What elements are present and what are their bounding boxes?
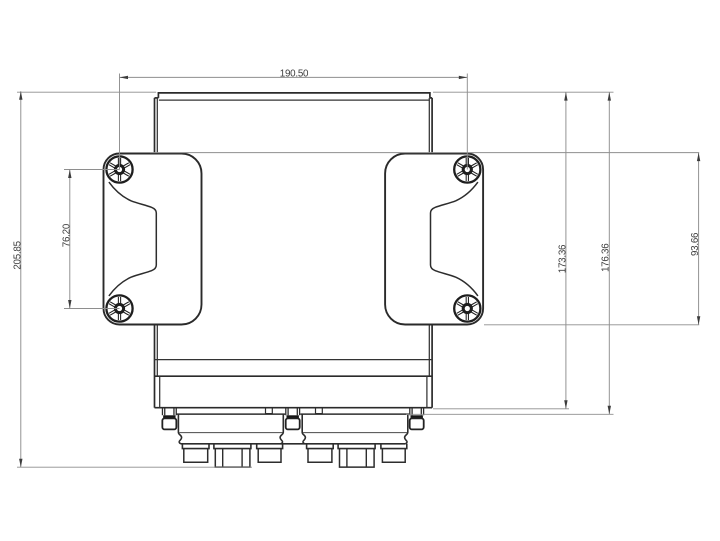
svg-text:173.36: 173.36 — [558, 244, 569, 273]
svg-text:93.66: 93.66 — [690, 232, 701, 256]
svg-text:76.20: 76.20 — [62, 223, 73, 247]
svg-text:205.85: 205.85 — [12, 240, 23, 269]
svg-text:176.36: 176.36 — [600, 243, 611, 272]
svg-text:190.50: 190.50 — [280, 68, 309, 79]
